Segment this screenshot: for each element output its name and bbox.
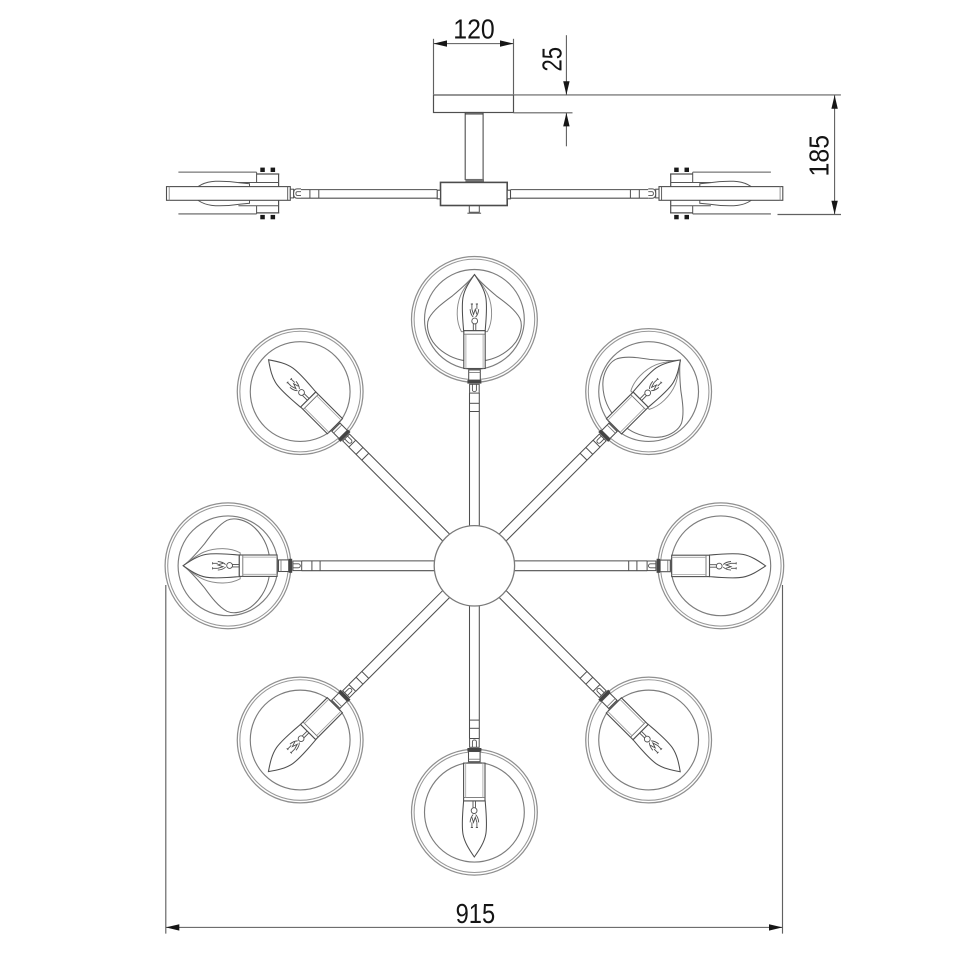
svg-text:120: 120 <box>453 13 495 44</box>
svg-text:915: 915 <box>456 898 496 929</box>
svg-text:185: 185 <box>804 135 835 177</box>
svg-text:25: 25 <box>537 47 568 72</box>
